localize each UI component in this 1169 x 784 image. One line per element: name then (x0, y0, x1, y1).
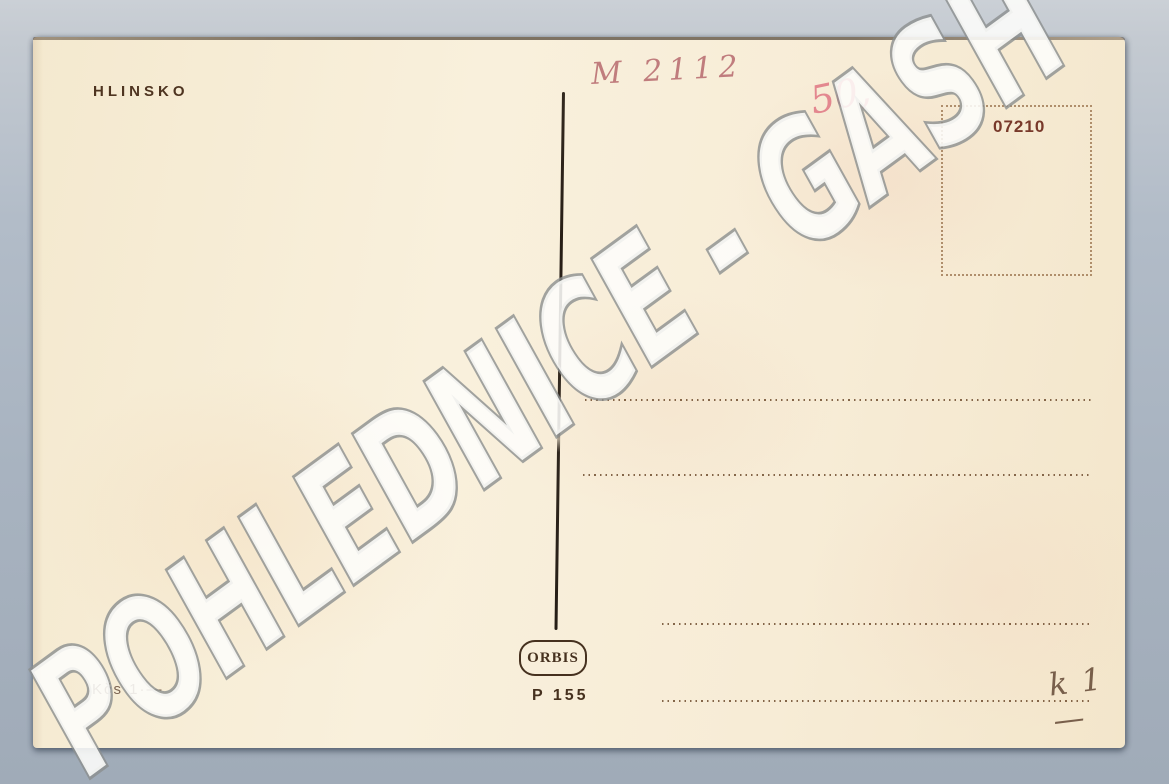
handwritten-note: k 1 — (1047, 659, 1129, 739)
handwritten-price: 50, (806, 67, 874, 123)
stamp-box-number: 07210 (993, 117, 1045, 137)
handwritten-catalog-number: M 2112 (590, 49, 744, 92)
address-line-1 (585, 399, 1092, 401)
postcard: HLINSKO M 2112 50, 07210 ORBIS P 155 Kčs… (33, 37, 1125, 748)
address-line-3 (662, 623, 1092, 625)
printed-price: Kčs 1·— (92, 681, 164, 698)
publisher-logo-oval: ORBIS (519, 640, 587, 676)
print-code: P 155 (532, 687, 589, 705)
divider-line (554, 92, 565, 630)
address-line-4 (662, 700, 1092, 702)
stamp-box: 07210 (941, 105, 1092, 276)
location-title: HLINSKO (93, 83, 189, 100)
address-line-2 (583, 474, 1092, 476)
publisher-logo-label: ORBIS (527, 650, 579, 667)
scanner-background: HLINSKO M 2112 50, 07210 ORBIS P 155 Kčs… (0, 0, 1169, 784)
